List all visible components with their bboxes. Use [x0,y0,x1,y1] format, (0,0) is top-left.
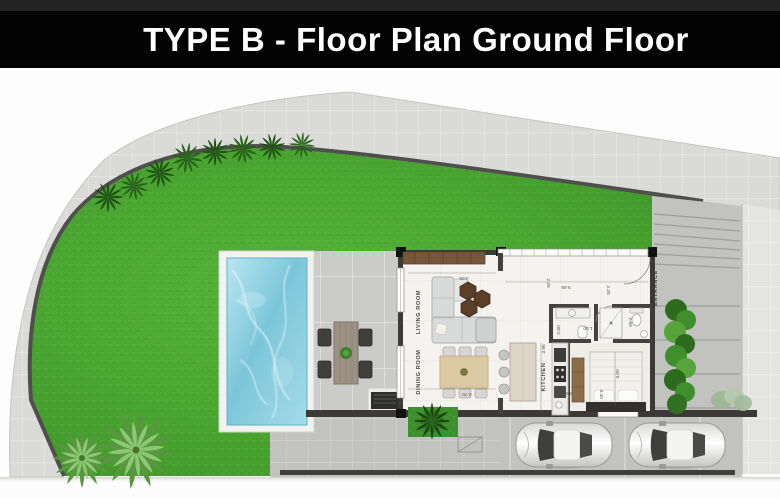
bedroom [570,343,650,412]
floor-plan-page: MAIN ENTRANCE [0,0,780,498]
dimension-label: 3.00 [615,369,621,379]
right-pavement-strip [742,204,780,474]
page-title: TYPE B - Floor Plan Ground Floor [143,21,689,59]
dimension-label: 4.70 [462,391,472,397]
dining-set [440,347,488,398]
dimension-label: 3.40 [598,389,604,399]
dimension-label: 1.00 [583,325,593,331]
armchair [476,318,496,342]
dimension-label: 3.96 [541,344,547,354]
dining-room-label: DINING ROOM [416,349,422,394]
wardrobe [572,358,584,402]
pergola-wood-strip [403,252,485,264]
bottom-margin [0,477,780,498]
title-bar: TYPE B - Floor Plan Ground Floor [0,11,780,68]
dimension-label: 4.05 [459,275,469,281]
dimension-label: 2.25 [545,278,551,288]
site-plan-svg: MAIN ENTRANCE [0,0,780,498]
swimming-pool [227,258,307,425]
kitchen-label: KITCHEN [541,362,547,391]
bar-stool [499,350,509,394]
dimension-label: 0.60 [556,325,562,335]
car-1 [516,421,612,469]
dimension-label: 0.60 [563,390,573,396]
dimension-label: 2.25 [605,285,611,295]
dimension-label: 5.65 [561,284,571,290]
car-2 [629,421,725,469]
headboard [586,402,646,412]
boundary-wall [280,470,735,475]
header-top-strip [0,0,780,11]
dimension-label: 2.60 [627,317,633,327]
living-room-label: LIVING ROOM [416,290,422,334]
palm-patch [408,402,458,439]
entrance-walkway: MAIN ENTRANCE [644,196,742,417]
